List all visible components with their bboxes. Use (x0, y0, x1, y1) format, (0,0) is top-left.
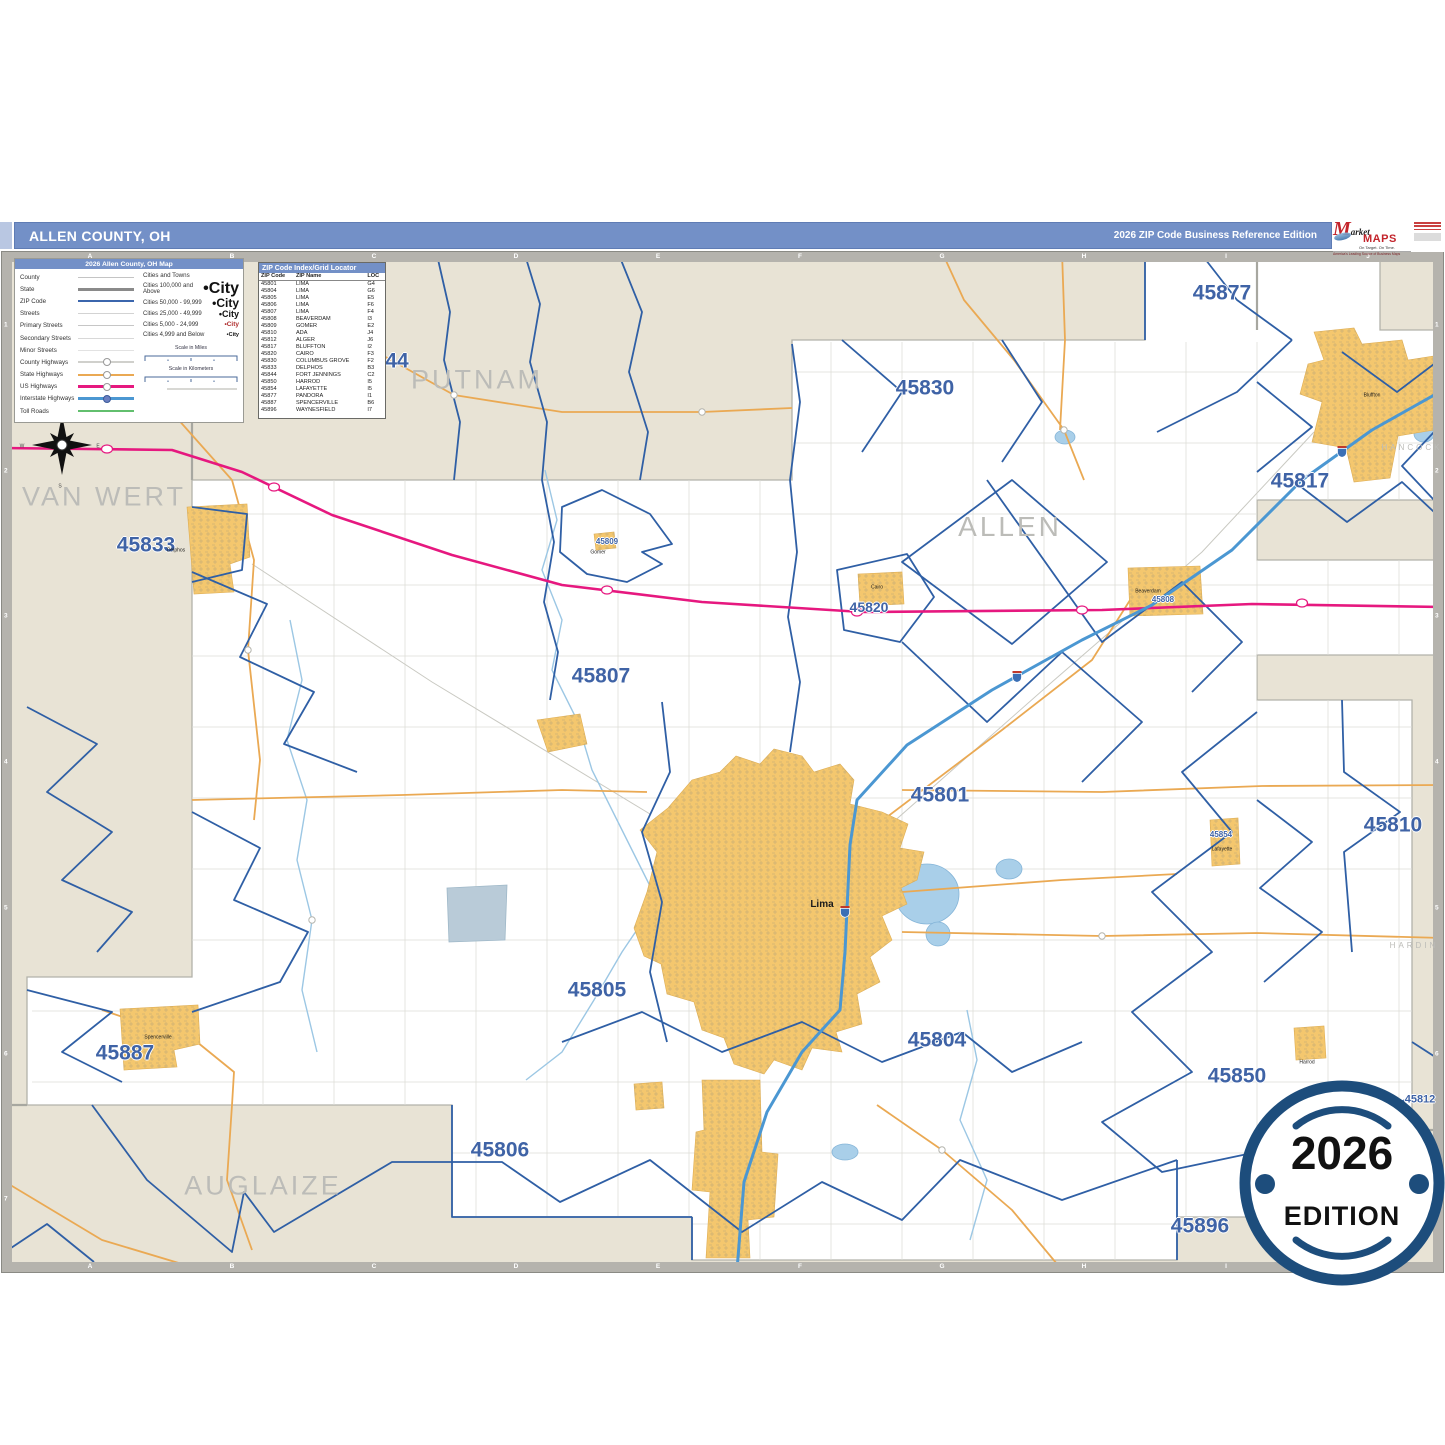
city-class-label: Cities 25,000 - 49,999 (143, 311, 202, 317)
badge-word: EDITION (1284, 1201, 1401, 1231)
countyhwy-line-sample (78, 361, 134, 363)
grid-column-letter: G (939, 253, 944, 260)
zip-index-row: 45887SPENCERVILLEB6 (259, 400, 385, 407)
legend-item: ZIP Code (15, 295, 139, 307)
zip-index-header-row: ZIP CodeZIP NameLOC (259, 273, 385, 281)
zip-index-row: 45801LIMAG4 (259, 281, 385, 289)
badge-left-dot (1255, 1174, 1275, 1194)
grid-row-number: 6 (1435, 1050, 1439, 1057)
zip-index-row: 45817BLUFFTONI2 (259, 344, 385, 351)
grid-row-number: 6 (4, 1050, 8, 1057)
city-class-row: Cities 50,000 - 99,999•City (143, 297, 239, 309)
badge-year: 2026 (1291, 1127, 1393, 1179)
zip-index-row: 45850HARRODI5 (259, 379, 385, 386)
edition-badge-svg: 2026 EDITION (1236, 1077, 1445, 1289)
edition-badge: 2026 EDITION (1236, 1077, 1445, 1289)
scale-kilometers: Scale in Kilometers (143, 366, 239, 383)
grid-row-number: 1 (1435, 322, 1439, 329)
city-class-sample: •City (219, 310, 239, 319)
logo-maps: MAPS (1363, 233, 1411, 245)
badge-right-dot (1409, 1174, 1429, 1194)
zip-index-title: ZIP Code Index/Grid Locator (259, 263, 385, 273)
city-class-row: Cities 100,000 and Above•City (143, 281, 239, 297)
zip-line-sample (78, 300, 134, 302)
legend-item: Primary Streets (15, 320, 139, 332)
legend-item-label: Streets (20, 310, 40, 317)
grid-column-letter: C (372, 253, 377, 260)
legend-cities-list: Cities 100,000 and Above•CityCities 50,0… (143, 281, 239, 341)
grid-row-number: 1 (4, 322, 8, 329)
grid-column-letter: H (1082, 253, 1087, 260)
zip-index-table: ZIP CodeZIP NameLOC 45801LIMAG445804LIMA… (259, 273, 385, 414)
city-class-label: Cities 100,000 and Above (143, 283, 203, 295)
city-class-row: Cities 25,000 - 49,999•City (143, 309, 239, 320)
primary-line-sample (78, 325, 134, 326)
scale-miles: Scale in Miles (143, 345, 239, 362)
legend-item-label: Interstate Highways (20, 395, 74, 402)
grid-row-number: 5 (1435, 904, 1439, 911)
legend-item: Toll Roads (15, 405, 139, 417)
legend-item: Secondary Streets (15, 332, 139, 344)
minor-line-sample (78, 350, 134, 351)
zip-index-row: 45805LIMAE5 (259, 295, 385, 302)
scale-bar-miles (143, 352, 239, 362)
zip-index-row: 45877PANDORAI1 (259, 393, 385, 400)
city-class-sample: •City (224, 322, 239, 329)
grid-column-letter: E (656, 253, 660, 260)
legend-cities-header: Cities and Towns (143, 272, 239, 279)
grid-row-number: 2 (4, 467, 8, 474)
header-corner-block (0, 222, 12, 249)
legend-item: Minor Streets (15, 344, 139, 356)
grid-column-letter: I (1225, 1263, 1227, 1270)
legend-item: Interstate Highways (15, 393, 139, 405)
city-class-row: Cities 5,000 - 24,999•City (143, 320, 239, 331)
grid-band-bottom: ABCDEFGHIJ (2, 1262, 1443, 1272)
interstate-line-sample (78, 397, 134, 400)
legend-item-label: County (20, 274, 40, 281)
legend-item: Streets (15, 308, 139, 320)
legend-item-label: State (20, 286, 34, 293)
legend-item: US Highways (15, 381, 139, 393)
zip-index-row: 45804LIMAG6 (259, 288, 385, 295)
legend-box: 2026 Allen County, OH Map CountyStateZIP… (14, 258, 244, 423)
grid-row-number: 3 (4, 613, 8, 620)
grid-row-number: 7 (4, 1196, 8, 1203)
grid-row-number: 5 (4, 904, 8, 911)
zip-index-row: 45812ALGERJ6 (259, 337, 385, 344)
grid-column-letter: H (1082, 1263, 1087, 1270)
contact-line (1414, 222, 1441, 224)
grid-column-letter: E (656, 1263, 660, 1270)
toll-line-sample (78, 410, 134, 412)
legend-lines: CountyStateZIP CodeStreetsPrimary Street… (15, 269, 139, 422)
state-line-sample (78, 288, 134, 291)
contact-line (1414, 229, 1441, 231)
marketmaps-logo: Market MAPS On Target. On Time. America'… (1333, 220, 1445, 252)
secondary-line-sample (78, 338, 134, 339)
legend-item-label: Minor Streets (20, 347, 57, 354)
legend-item: State (15, 283, 139, 295)
zip-index-column-header: LOC (365, 273, 385, 281)
contact-text-block (1414, 220, 1441, 252)
logo-subline: America's Leading Source of Business Map… (1333, 251, 1411, 256)
zip-index-row: 45808BEAVERDAMI3 (259, 316, 385, 323)
grid-column-letter: D (514, 253, 519, 260)
title-bar: ALLEN COUNTY, OH 2026 ZIP Code Business … (14, 222, 1332, 249)
copyright-microtext (167, 388, 237, 390)
zip-index-row: 45820CAIROF3 (259, 351, 385, 358)
grid-column-letter: I (1225, 253, 1227, 260)
statehwy-line-sample (78, 374, 134, 376)
legend-item-label: ZIP Code (20, 298, 46, 305)
grid-row-number: 3 (1435, 613, 1439, 620)
zip-index-row: 45854LAFAYETTEI5 (259, 386, 385, 393)
legend-item: County Highways (15, 356, 139, 368)
zip-index-box: ZIP Code Index/Grid Locator ZIP CodeZIP … (258, 262, 386, 419)
zip-index-row: 45810ADAJ4 (259, 330, 385, 337)
legend-title: 2026 Allen County, OH Map (15, 259, 243, 269)
zip-index-row: 45806LIMAF6 (259, 302, 385, 309)
streets-line-sample (78, 313, 134, 314)
legend-cities: Cities and Towns Cities 100,000 and Abov… (139, 269, 243, 422)
grid-band-left: 1234567 (2, 252, 12, 1272)
zip-index-row: 45830COLUMBUS GROVEF2 (259, 358, 385, 365)
grid-column-letter: A (88, 1263, 93, 1270)
zip-index-row: 45833DELPHOSB3 (259, 365, 385, 372)
legend-item-label: County Highways (20, 359, 68, 366)
city-class-label: Cities 50,000 - 99,999 (143, 300, 202, 306)
contact-line (1414, 225, 1441, 227)
city-class-label: Cities 5,000 - 24,999 (143, 322, 198, 328)
stock-code-box (1414, 233, 1441, 241)
legend-item-label: Secondary Streets (20, 335, 71, 342)
grid-row-number: 2 (1435, 467, 1439, 474)
grid-column-letter: C (372, 1263, 377, 1270)
legend-item: County (15, 271, 139, 283)
zip-index-column-header: ZIP Code (259, 273, 294, 281)
zip-index-row: 45896WAYNESFIELDI7 (259, 407, 385, 414)
zip-index-row: 45807LIMAF4 (259, 309, 385, 316)
legend-item-label: Primary Streets (20, 322, 63, 329)
ushwy-line-sample (78, 385, 134, 388)
city-class-label: Cities 4,999 and Below (143, 332, 204, 338)
legend-item-label: Toll Roads (20, 408, 49, 415)
city-class-sample: •City (212, 297, 239, 309)
grid-column-letter: B (230, 1263, 235, 1270)
page-title: ALLEN COUNTY, OH (29, 228, 171, 244)
grid-row-number: 4 (4, 759, 8, 766)
grid-row-number: 4 (1435, 759, 1439, 766)
page: { "header": { "title": "ALLEN COUNTY, OH… (0, 0, 1445, 1445)
city-class-row: Cities 4,999 and Below•City (143, 330, 239, 341)
logo-wordmark: Market MAPS On Target. On Time. America'… (1333, 220, 1411, 252)
legend-item-label: US Highways (20, 383, 57, 390)
grid-column-letter: D (514, 1263, 519, 1270)
edition-subtitle: 2026 ZIP Code Business Reference Edition (1114, 230, 1317, 241)
county-line-sample (78, 277, 134, 278)
zip-index-row: 45844FORT JENNINGSC2 (259, 372, 385, 379)
grid-column-letter: G (939, 1263, 944, 1270)
grid-column-letter: F (798, 253, 802, 260)
city-class-sample: •City (203, 281, 239, 297)
zip-index-column-header: ZIP Name (294, 273, 365, 281)
scale-bar-km (143, 373, 239, 383)
legend-item: State Highways (15, 369, 139, 381)
grid-column-letter: F (798, 1263, 802, 1270)
city-class-sample: •City (227, 333, 239, 339)
legend-item-label: State Highways (20, 371, 63, 378)
zip-index-row: 45809GOMERE2 (259, 323, 385, 330)
logo-tagline: On Target. On Time. (1359, 245, 1411, 250)
